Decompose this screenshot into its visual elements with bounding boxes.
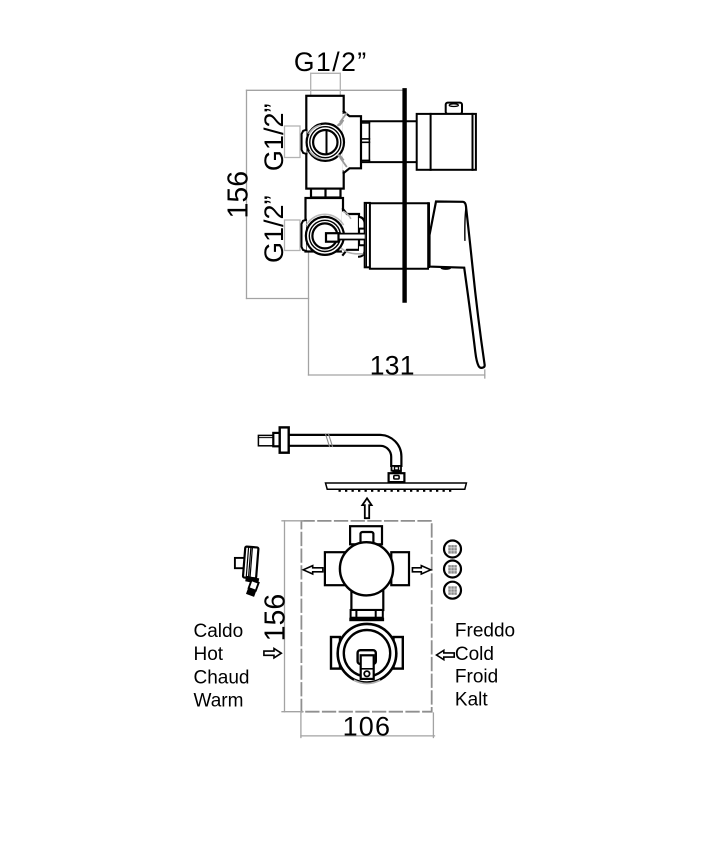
svg-text:G1/2”: G1/2” [259, 104, 289, 172]
svg-text:Freddo: Freddo [455, 621, 515, 642]
svg-text:156: 156 [259, 594, 291, 642]
svg-text:Hot: Hot [194, 644, 224, 665]
svg-text:G1/2”: G1/2” [294, 47, 368, 77]
svg-text:G1/2”: G1/2” [259, 195, 289, 263]
svg-text:Froid: Froid [455, 667, 498, 688]
svg-text:Chaud: Chaud [194, 667, 250, 688]
svg-text:131: 131 [370, 351, 415, 381]
svg-text:106: 106 [343, 712, 392, 742]
svg-text:Kalt: Kalt [455, 689, 488, 710]
svg-text:Warm: Warm [194, 690, 244, 711]
svg-text:Cold: Cold [455, 644, 494, 665]
svg-text:Caldo: Caldo [194, 621, 244, 642]
svg-text:156: 156 [222, 171, 254, 219]
